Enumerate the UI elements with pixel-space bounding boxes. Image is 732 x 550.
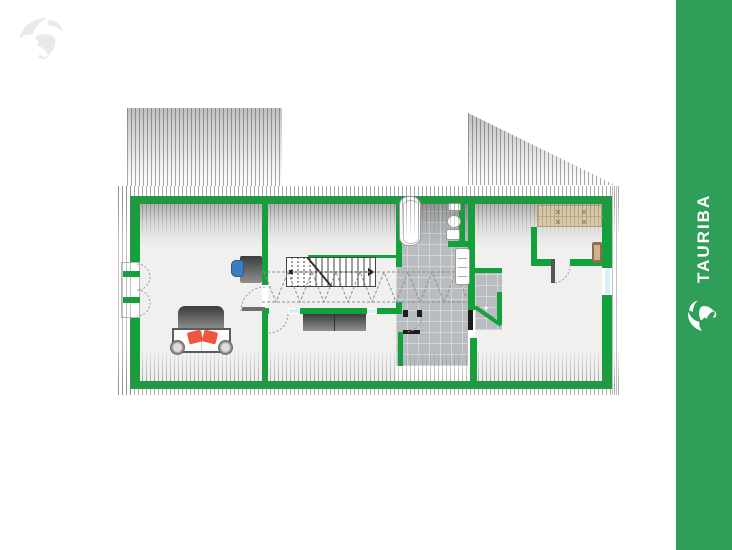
bull-icon: [685, 299, 725, 333]
bull-icon: [16, 14, 66, 60]
wall-closet-bottom-left: [531, 259, 551, 266]
double-bed: [170, 304, 234, 366]
bathroom-door-swing-arc: [404, 315, 424, 335]
page: { "brand": { "name": "TAURIBA", "sidebar…: [0, 0, 732, 550]
wc-partition-horizontal: [448, 241, 475, 247]
roof-dormer-hatch: [127, 108, 282, 186]
headroom-dashed-line: [262, 271, 468, 303]
brand-name: TAURIBA: [676, 168, 732, 308]
radiator: [455, 248, 470, 285]
sideboard: [303, 314, 366, 331]
brand-sidebar: TAURIBA: [676, 0, 732, 550]
h1-glass-panel-2: [367, 308, 377, 314]
bull-watermark-icon: [16, 14, 66, 60]
closet-door-swing-arc: [553, 261, 573, 285]
window-swing-arcs: [136, 263, 162, 317]
roof-slope-hatch-top: [118, 186, 620, 238]
wall-bathroom-left-mid: [396, 302, 402, 314]
office-chair: [231, 260, 244, 277]
middleroom-door-swing-arc: [267, 312, 291, 336]
bed-stool-left: [170, 340, 185, 355]
dresser: [592, 242, 602, 263]
vestibule-wall-top: [475, 268, 502, 273]
bedroom-door-panel: [242, 307, 265, 311]
roof-gable-triangle-hatch: [468, 113, 615, 185]
vestibule-open-door: [473, 304, 505, 329]
floor-plan: [118, 108, 620, 395]
roof-slope-hatch-left: [118, 186, 131, 395]
bed-stool-right: [218, 340, 233, 355]
right-wall-window: [604, 268, 611, 295]
roof-slope-hatch-right: [612, 186, 620, 395]
wall-closet-bottom-right: [570, 259, 612, 266]
